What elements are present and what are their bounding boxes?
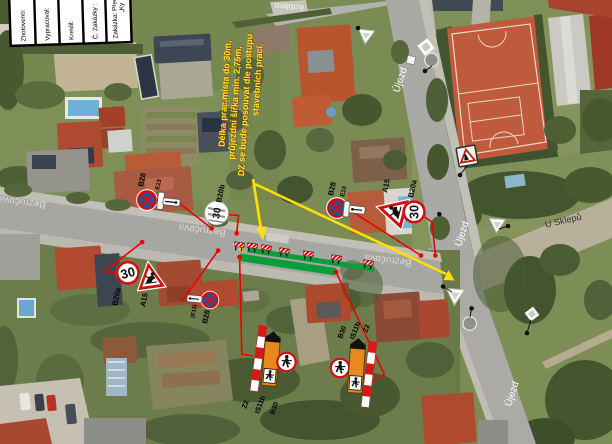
svg-text:30: 30 [408, 205, 422, 219]
svg-text:Koblero: Koblero [274, 1, 304, 13]
svg-text:„Ky: „Ky [118, 2, 125, 13]
svg-text:Kreslil:: Kreslil: [68, 20, 76, 40]
svg-text:Vypracoval:: Vypracoval: [44, 7, 52, 41]
svg-text:Zhotoveno:: Zhotoveno: [20, 9, 28, 41]
